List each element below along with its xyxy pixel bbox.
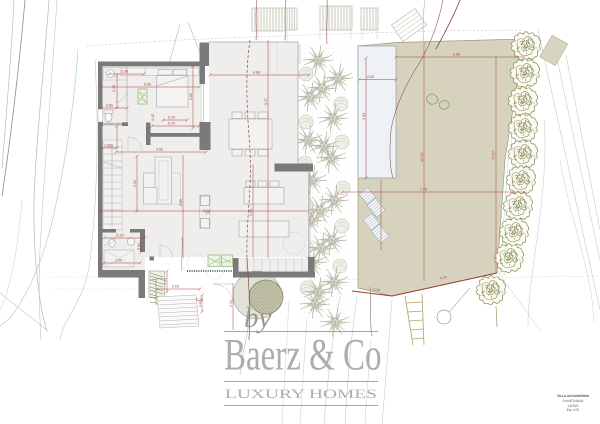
svg-text:5.00: 5.00: [144, 83, 151, 87]
svg-text:PLANTA BAJA: PLANTA BAJA: [563, 399, 585, 403]
svg-text:1.62: 1.62: [115, 259, 122, 263]
svg-text:6.86: 6.86: [453, 53, 460, 57]
svg-text:1.00: 1.00: [104, 144, 111, 148]
svg-text:4.00: 4.00: [156, 148, 163, 152]
svg-text:4.83: 4.83: [362, 113, 366, 120]
svg-text:12.07: 12.07: [491, 151, 496, 160]
svg-text:2.83: 2.83: [189, 93, 193, 100]
svg-text:Baerz & Co: Baerz & Co: [224, 330, 382, 380]
svg-text:4.89: 4.89: [253, 71, 260, 75]
svg-text:5.54: 5.54: [133, 180, 137, 187]
svg-text:1.44: 1.44: [163, 278, 167, 285]
svg-text:6.85: 6.85: [179, 199, 183, 206]
svg-text:0.60: 0.60: [203, 209, 210, 213]
svg-text:Esc 1/75: Esc 1/75: [567, 408, 580, 412]
svg-text:2.03: 2.03: [117, 234, 124, 238]
svg-text:0.45: 0.45: [151, 114, 155, 121]
svg-text:0.70: 0.70: [168, 122, 175, 126]
svg-text:0.94: 0.94: [137, 243, 141, 250]
svg-text:0.85: 0.85: [106, 104, 113, 108]
svg-text:2.08: 2.08: [121, 70, 128, 74]
svg-text:VILLA AGUAMARINA: VILLA AGUAMARINA: [557, 394, 590, 398]
svg-text:2.00: 2.00: [367, 75, 374, 79]
svg-text:2.30: 2.30: [112, 85, 116, 92]
svg-text:0.70: 0.70: [168, 116, 175, 120]
svg-text:0.26: 0.26: [196, 298, 203, 302]
svg-text:2.14: 2.14: [229, 300, 233, 307]
svg-text:6.37: 6.37: [264, 98, 268, 105]
svg-text:2.03: 2.03: [172, 285, 179, 289]
svg-text:7.79: 7.79: [420, 188, 427, 192]
svg-text:13.13: 13.13: [420, 153, 424, 162]
svg-text:LUXURY HOMES: LUXURY HOMES: [225, 387, 377, 401]
svg-text:4.90: 4.90: [249, 209, 253, 216]
